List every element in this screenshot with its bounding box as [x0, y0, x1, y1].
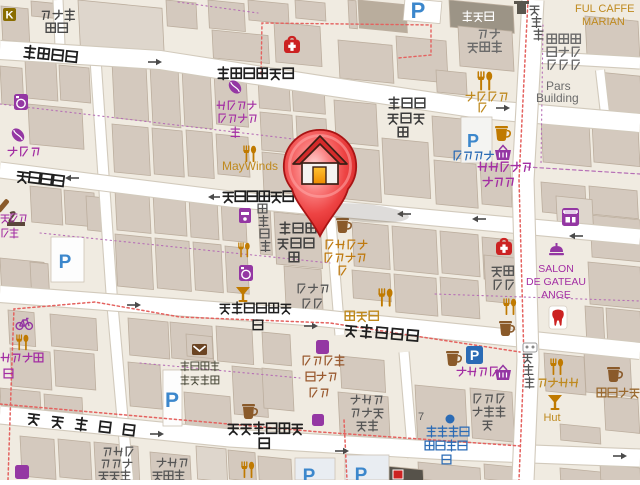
svg-text:ANGE: ANGE: [541, 289, 571, 301]
svg-text:P: P: [411, 0, 426, 23]
svg-text:P: P: [303, 466, 316, 480]
svg-text:MARIAN: MARIAN: [582, 16, 625, 28]
svg-text:SALON: SALON: [538, 263, 574, 275]
svg-text:DE GATEAU: DE GATEAU: [526, 276, 586, 288]
svg-text:P: P: [165, 389, 179, 412]
svg-text:P: P: [355, 465, 368, 480]
svg-text:7: 7: [418, 411, 424, 423]
svg-text:Building: Building: [536, 91, 579, 105]
svg-text:Hut: Hut: [543, 412, 560, 424]
svg-text:FUL CAFFE: FUL CAFFE: [575, 3, 635, 15]
svg-text:P: P: [467, 131, 479, 151]
svg-text:P: P: [59, 252, 72, 273]
svg-text:MayWinds: MayWinds: [222, 159, 278, 173]
svg-text:K: K: [6, 10, 14, 22]
svg-text:P: P: [470, 347, 479, 363]
